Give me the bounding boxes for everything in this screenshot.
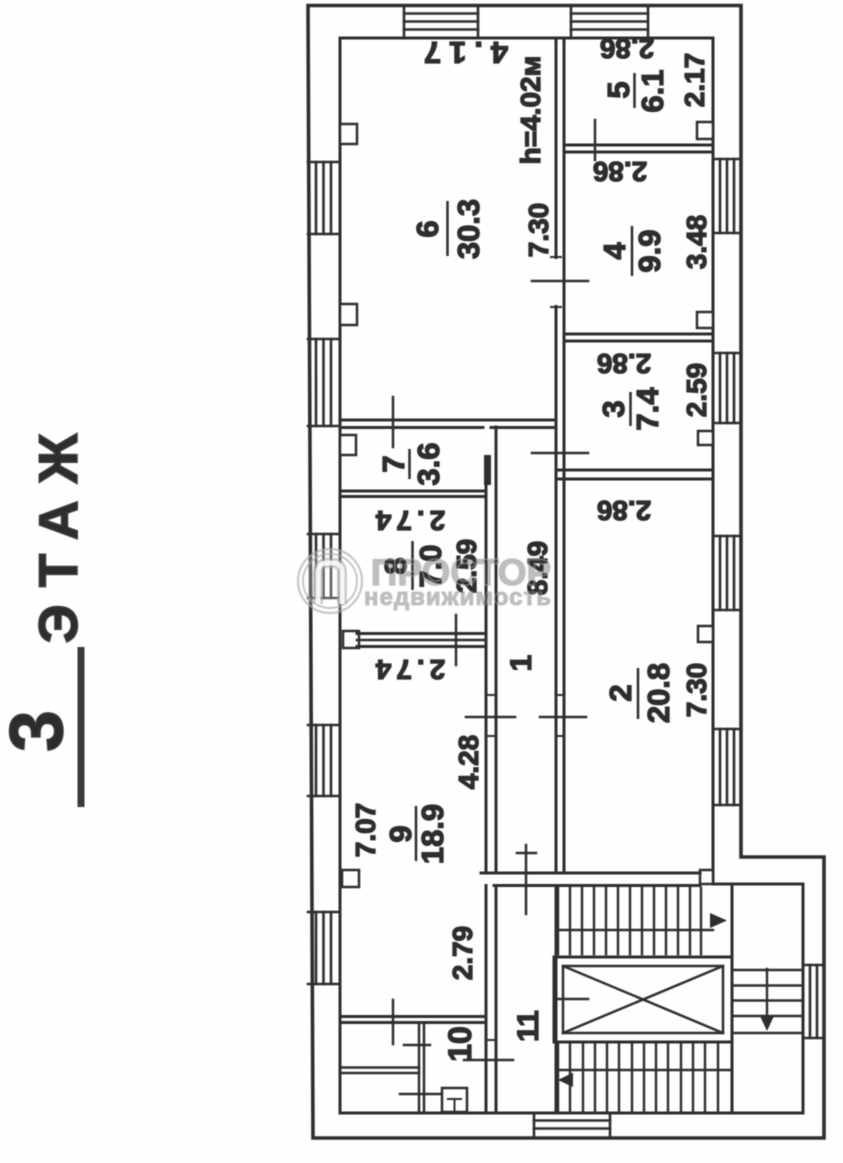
svg-text:7.30: 7.30	[681, 663, 712, 718]
svg-text:11: 11	[512, 1010, 545, 1042]
svg-text:6.1: 6.1	[635, 69, 670, 112]
svg-text:2.74: 2.74	[371, 654, 446, 685]
svg-text:3.48: 3.48	[681, 215, 712, 270]
svg-text:2.17: 2.17	[679, 53, 710, 108]
svg-text:4.17: 4.17	[416, 35, 508, 70]
svg-text:4: 4	[597, 242, 632, 260]
svg-text:7.30: 7.30	[523, 203, 554, 258]
svg-text:2.86: 2.86	[597, 348, 652, 379]
svg-text:2.59: 2.59	[681, 363, 712, 418]
svg-text:4.28: 4.28	[453, 735, 484, 790]
svg-text:5: 5	[601, 81, 636, 98]
svg-text:9.9: 9.9	[632, 229, 667, 272]
svg-text:2.86: 2.86	[593, 156, 648, 187]
svg-text:7.4: 7.4	[630, 387, 665, 431]
svg-text:2.79: 2.79	[447, 926, 478, 981]
svg-text:7.07: 7.07	[350, 803, 381, 858]
svg-text:9: 9	[383, 825, 418, 842]
svg-text:20.8: 20.8	[641, 663, 676, 723]
svg-text:10: 10	[442, 1026, 478, 1062]
svg-text:18.9: 18.9	[415, 804, 450, 864]
svg-text:2.74: 2.74	[371, 505, 446, 536]
svg-text:3: 3	[596, 400, 631, 417]
svg-text:2: 2	[603, 684, 638, 701]
svg-text:ЭТАЖ: ЭТАЖ	[27, 417, 89, 644]
svg-text:3: 3	[0, 710, 78, 752]
svg-text:6: 6	[410, 220, 445, 237]
svg-text:1: 1	[505, 655, 538, 672]
svg-text:3.6: 3.6	[411, 442, 446, 485]
svg-text:7: 7	[376, 455, 411, 472]
svg-text:2.86: 2.86	[597, 495, 652, 526]
svg-text:30.3: 30.3	[451, 199, 486, 259]
svg-text:h=4.02м: h=4.02м	[515, 56, 546, 165]
svg-text:2.86: 2.86	[600, 33, 655, 64]
svg-text:недвижимость: недвижимость	[364, 584, 552, 611]
